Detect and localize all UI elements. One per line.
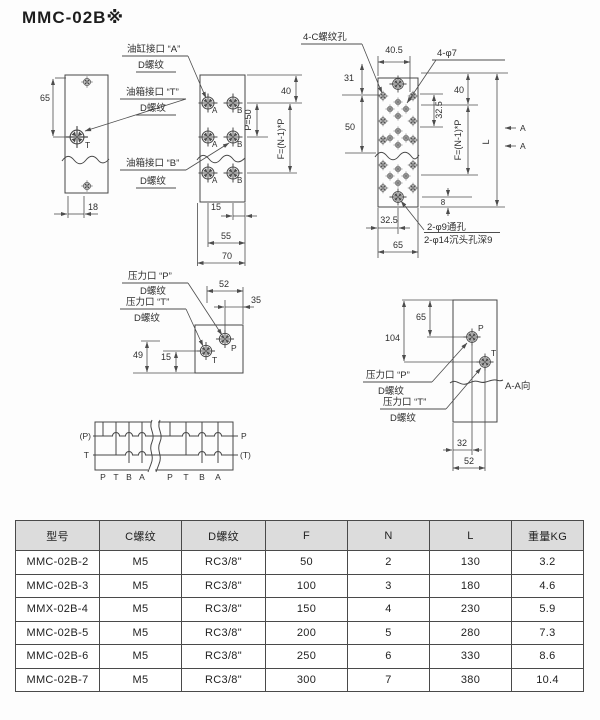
dim-l: L bbox=[481, 139, 491, 144]
column-header-weight: 重量KG bbox=[512, 521, 584, 551]
schematic-port-label: B bbox=[199, 472, 205, 482]
port-t-letter: T bbox=[491, 348, 496, 358]
table-cell: 5.9 bbox=[512, 598, 584, 622]
table-cell: MMC-02B-3 bbox=[16, 574, 100, 598]
table-cell: 8.6 bbox=[512, 645, 584, 669]
column-header-model: 型号 bbox=[16, 521, 100, 551]
table-cell: MMC-02B-6 bbox=[16, 645, 100, 669]
schematic-port-label: P bbox=[100, 472, 106, 482]
c-thread-holes-label: 4-C螺纹孔 bbox=[303, 31, 347, 43]
top-view-drawing: 4-C螺纹孔 4-φ7 40.5 31 50 32.5 40 F=(N-1)*P… bbox=[301, 31, 526, 258]
port-t-letter: T bbox=[85, 140, 90, 150]
schematic-port-label: P bbox=[167, 472, 173, 482]
spec-table-body: MMC-02B-2M5RC3/8"5021303.2MMC-02B-3M5RC3… bbox=[16, 551, 584, 692]
table-cell: M5 bbox=[100, 621, 182, 645]
dim-f-formula: F=(N-1)*P bbox=[453, 120, 463, 161]
table-cell: M5 bbox=[100, 645, 182, 669]
catalog-page: { "title": "MMC-02B※", "labels": { "cyl_… bbox=[0, 0, 600, 720]
technical-drawing: T 65 18 A B A B A B 油缸接口 “A” D螺纹 油箱接口 “T… bbox=[0, 0, 600, 512]
dim-65: 65 bbox=[393, 240, 403, 250]
table-cell: 150 bbox=[266, 598, 348, 622]
table-cell: RC3/8" bbox=[182, 645, 266, 669]
hydraulic-schematic: (P) T P (T) P T B A P T B A bbox=[80, 420, 251, 482]
dim-15: 15 bbox=[161, 352, 171, 362]
port-p-letter: P bbox=[478, 323, 484, 333]
d-thread-label: D螺纹 bbox=[134, 312, 160, 324]
table-cell: MMC-02B-5 bbox=[16, 621, 100, 645]
table-cell: RC3/8" bbox=[182, 574, 266, 598]
dim-p50: P=50 bbox=[243, 109, 253, 130]
pressure-port-p-label: 压力口 “P” bbox=[366, 369, 410, 381]
table-row: MMC-02B-7M5RC3/8"300738010.4 bbox=[16, 668, 584, 692]
port-t-letter: T bbox=[212, 355, 217, 365]
section-aa-label: A-A向 bbox=[505, 380, 530, 392]
spec-table: 型号 C螺纹 D螺纹 F N L 重量KG MMC-02B-2M5RC3/8"5… bbox=[15, 520, 584, 692]
dim-f-formula: F=(N-1)*P bbox=[276, 119, 286, 160]
schematic-port-label: B bbox=[126, 472, 132, 482]
front-view-drawing: A B A B A B 油缸接口 “A” D螺纹 油箱接口 “T” D螺纹 油箱… bbox=[85, 43, 302, 266]
table-cell: 4 bbox=[348, 598, 430, 622]
table-cell: 3 bbox=[348, 574, 430, 598]
d-thread-label: D螺纹 bbox=[138, 59, 164, 71]
phi7-holes-label: 4-φ7 bbox=[437, 48, 457, 59]
table-cell: RC3/8" bbox=[182, 551, 266, 575]
d-thread-label: D螺纹 bbox=[390, 412, 416, 424]
table-cell: 4.6 bbox=[512, 574, 584, 598]
tank-port-t-label: 油箱接口 “T” bbox=[126, 86, 179, 98]
port-b-letter: B bbox=[237, 140, 242, 149]
table-cell: 380 bbox=[430, 668, 512, 692]
side-view-drawing: T 65 18 bbox=[40, 75, 109, 218]
dim-52: 52 bbox=[464, 456, 474, 466]
d-thread-label: D螺纹 bbox=[378, 385, 404, 397]
table-cell: 50 bbox=[266, 551, 348, 575]
tank-port-b-label: 油箱接口 “B” bbox=[126, 157, 179, 169]
mounting-pattern bbox=[378, 91, 418, 193]
table-cell: 100 bbox=[266, 574, 348, 598]
table-cell: 5 bbox=[348, 621, 430, 645]
port-a-letter: A bbox=[212, 106, 218, 115]
section-arrow-a: A bbox=[520, 141, 526, 151]
section-arrow-a: A bbox=[520, 123, 526, 133]
schematic-t-right: (T) bbox=[240, 450, 251, 460]
schematic-p-right: P bbox=[241, 431, 247, 441]
dim-55: 55 bbox=[221, 231, 231, 241]
dim-52: 52 bbox=[219, 279, 229, 289]
schematic-port-label: A bbox=[139, 472, 145, 482]
dim-35: 35 bbox=[251, 295, 261, 305]
table-cell: MMC-02B-2 bbox=[16, 551, 100, 575]
schematic-port-label: T bbox=[183, 472, 188, 482]
table-cell: RC3/8" bbox=[182, 621, 266, 645]
mount-hole bbox=[81, 76, 92, 87]
table-cell: 250 bbox=[266, 645, 348, 669]
dim-40: 40 bbox=[281, 86, 291, 96]
dim-104: 104 bbox=[385, 333, 400, 343]
dim-32: 32 bbox=[457, 438, 467, 448]
dim-32-5: 32.5 bbox=[434, 101, 444, 119]
table-cell: 3.2 bbox=[512, 551, 584, 575]
dim-49: 49 bbox=[133, 350, 143, 360]
d-thread-label: D螺纹 bbox=[140, 285, 166, 297]
table-cell: 7 bbox=[348, 668, 430, 692]
schematic-p-left: (P) bbox=[80, 431, 92, 441]
column-header-n: N bbox=[348, 521, 430, 551]
table-cell: M5 bbox=[100, 668, 182, 692]
dim-15: 15 bbox=[211, 202, 221, 212]
column-header-f: F bbox=[266, 521, 348, 551]
table-cell: 200 bbox=[266, 621, 348, 645]
dim-18: 18 bbox=[88, 202, 98, 212]
phi9-holes-label: 2-φ9通孔 bbox=[427, 222, 466, 233]
dim-65: 65 bbox=[40, 93, 50, 103]
pressure-port-t-label: 压力口 “T” bbox=[126, 296, 169, 308]
schematic-port-label: T bbox=[113, 472, 118, 482]
dim-31: 31 bbox=[344, 73, 354, 83]
dim-65: 65 bbox=[416, 312, 426, 322]
table-cell: 180 bbox=[430, 574, 512, 598]
d-thread-label: D螺纹 bbox=[140, 175, 166, 187]
table-cell: 230 bbox=[430, 598, 512, 622]
table-row: MMC-02B-2M5RC3/8"5021303.2 bbox=[16, 551, 584, 575]
table-cell: 130 bbox=[430, 551, 512, 575]
table-cell: 330 bbox=[430, 645, 512, 669]
table-cell: RC3/8" bbox=[182, 598, 266, 622]
dim-50: 50 bbox=[345, 122, 355, 132]
schematic-port-label: A bbox=[215, 472, 221, 482]
table-cell: M5 bbox=[100, 551, 182, 575]
table-cell: 6 bbox=[348, 645, 430, 669]
column-header-l: L bbox=[430, 521, 512, 551]
d-thread-label: D螺纹 bbox=[140, 102, 166, 114]
mount-hole bbox=[81, 180, 92, 191]
table-row: MMC-02B-6M5RC3/8"25063308.6 bbox=[16, 645, 584, 669]
table-cell: M5 bbox=[100, 598, 182, 622]
counterbore-hole bbox=[389, 188, 406, 205]
port-b-letter: B bbox=[237, 176, 242, 185]
pt-view-drawing: P T 压力口 “P” D螺纹 压力口 “T” D螺纹 52 35 49 15 bbox=[120, 270, 261, 373]
section-view-drawing: P T 65 104 压力口 “P” D螺纹 压力口 “T” D螺纹 A-A向 … bbox=[363, 300, 530, 471]
table-cell: 10.4 bbox=[512, 668, 584, 692]
port-p-letter: P bbox=[231, 343, 237, 353]
table-row: MMC-02B-3M5RC3/8"10031804.6 bbox=[16, 574, 584, 598]
table-cell: 300 bbox=[266, 668, 348, 692]
table-row: MMC-02B-5M5RC3/8"20052807.3 bbox=[16, 621, 584, 645]
table-cell: RC3/8" bbox=[182, 668, 266, 692]
phi14-holes-label: 2-φ14沉头孔深9 bbox=[424, 234, 492, 246]
table-cell: 2 bbox=[348, 551, 430, 575]
dim-40-5: 40.5 bbox=[385, 45, 403, 55]
table-cell: M5 bbox=[100, 574, 182, 598]
port-b-letter: B bbox=[237, 106, 242, 115]
table-cell: MMC-02B-7 bbox=[16, 668, 100, 692]
schematic-t-left: T bbox=[84, 450, 89, 460]
table-row: MMX-02B-4M5RC3/8"15042305.9 bbox=[16, 598, 584, 622]
column-header-c-thread: C螺纹 bbox=[100, 521, 182, 551]
port-a-letter: A bbox=[212, 140, 218, 149]
dim-32-5-bottom: 32.5 bbox=[380, 215, 398, 225]
cylinder-port-a-label: 油缸接口 “A” bbox=[127, 43, 180, 55]
pressure-port-p-label: 压力口 “P” bbox=[128, 270, 172, 282]
table-cell: 280 bbox=[430, 621, 512, 645]
table-cell: MMX-02B-4 bbox=[16, 598, 100, 622]
table-header-row: 型号 C螺纹 D螺纹 F N L 重量KG bbox=[16, 521, 584, 551]
dim-8: 8 bbox=[441, 198, 446, 207]
dim-40: 40 bbox=[454, 85, 464, 95]
table-cell: 7.3 bbox=[512, 621, 584, 645]
column-header-d-thread: D螺纹 bbox=[182, 521, 266, 551]
pressure-port-t-label: 压力口 “T” bbox=[383, 396, 426, 408]
port-a-letter: A bbox=[212, 176, 218, 185]
dim-70: 70 bbox=[222, 251, 232, 261]
